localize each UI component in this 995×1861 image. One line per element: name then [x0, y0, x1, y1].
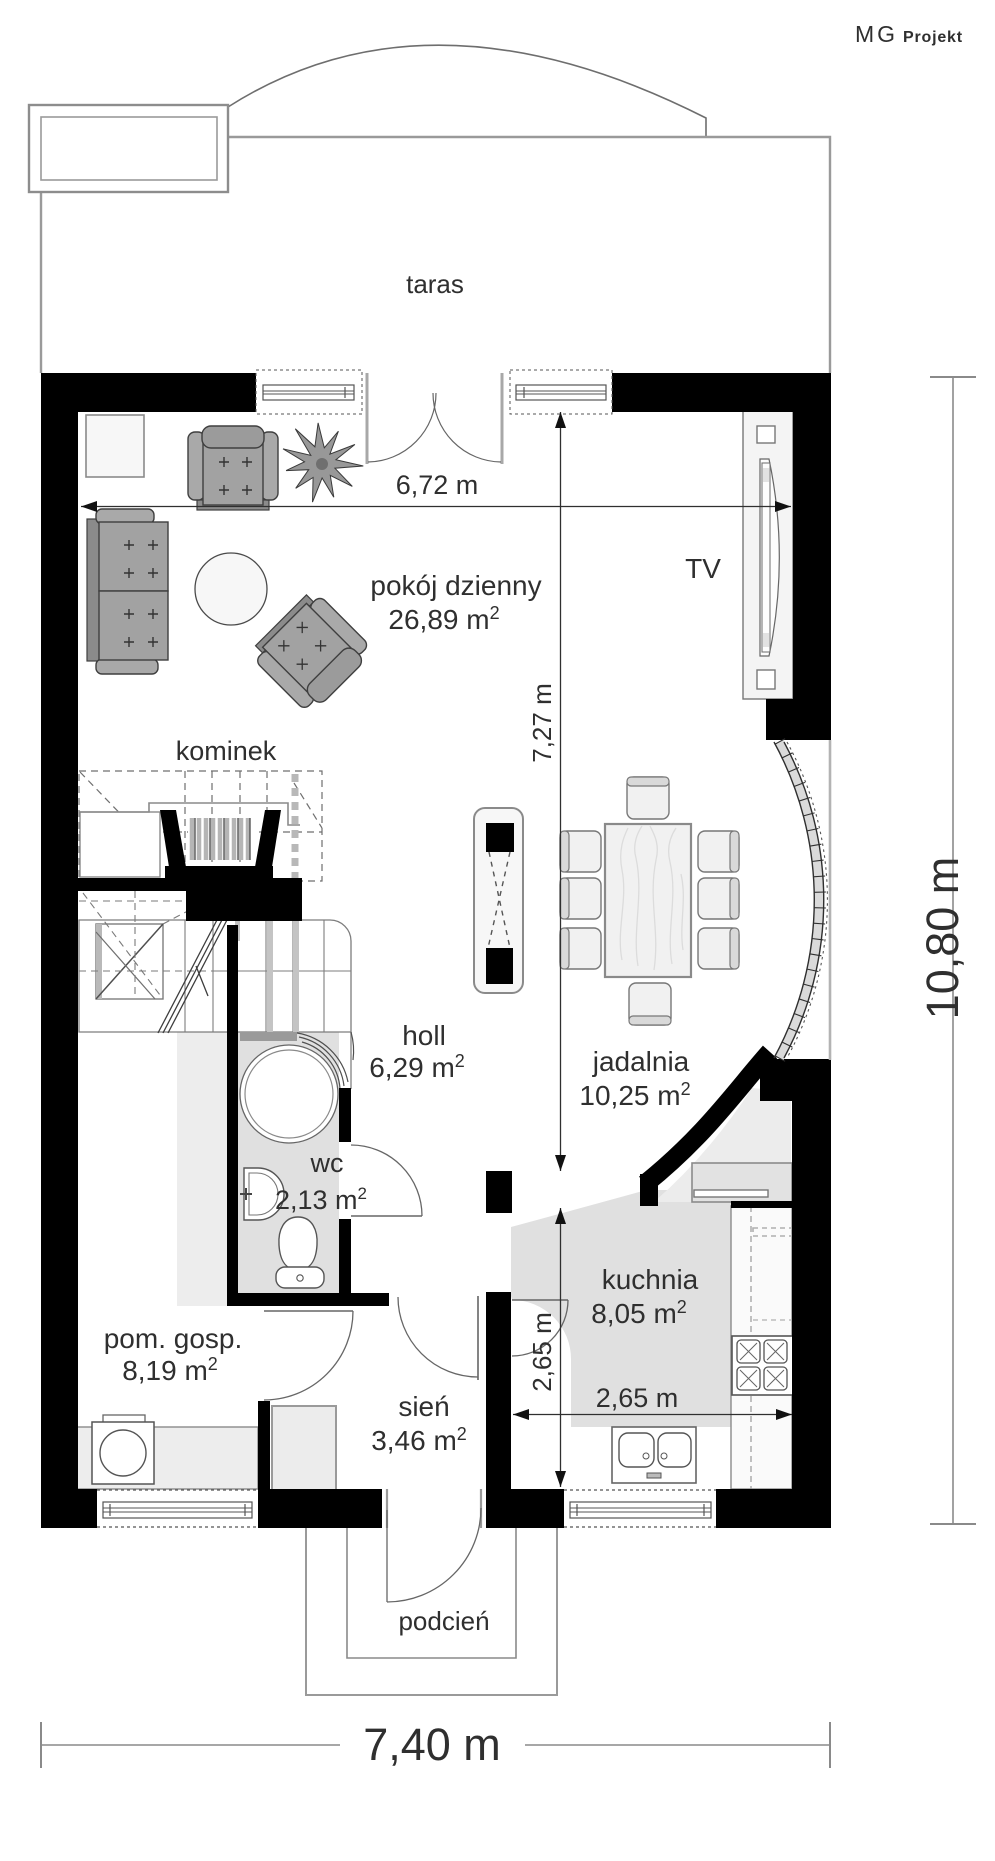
- svg-text:6,72 m: 6,72 m: [396, 470, 479, 500]
- svg-text:7,40 m: 7,40 m: [363, 1719, 501, 1770]
- svg-text:sień: sień: [398, 1391, 449, 1422]
- svg-text:10,25 m2: 10,25 m2: [579, 1079, 690, 1111]
- svg-text:8,05 m2: 8,05 m2: [591, 1297, 687, 1329]
- svg-text:podcień: podcień: [398, 1606, 489, 1636]
- svg-text:Projekt: Projekt: [903, 29, 963, 46]
- svg-text:2,65 m: 2,65 m: [596, 1383, 679, 1413]
- svg-text:kominek: kominek: [176, 736, 277, 766]
- svg-text:kuchnia: kuchnia: [602, 1264, 699, 1295]
- svg-text:2,13 m2: 2,13 m2: [275, 1184, 367, 1215]
- svg-text:MG: MG: [855, 21, 898, 47]
- svg-text:TV: TV: [685, 553, 721, 584]
- svg-text:taras: taras: [406, 269, 464, 299]
- svg-text:pom. gosp.: pom. gosp.: [104, 1323, 243, 1354]
- svg-text:2,65 m: 2,65 m: [527, 1312, 557, 1392]
- svg-text:6,29 m2: 6,29 m2: [369, 1051, 465, 1083]
- svg-text:7,27 m: 7,27 m: [527, 683, 557, 763]
- svg-text:pokój dzienny: pokój dzienny: [370, 570, 541, 601]
- svg-text:26,89 m2: 26,89 m2: [388, 603, 499, 635]
- svg-text:wc: wc: [310, 1148, 344, 1178]
- svg-text:10,80 m: 10,80 m: [917, 857, 968, 1020]
- svg-text:jadalnia: jadalnia: [592, 1046, 690, 1077]
- svg-text:8,19 m2: 8,19 m2: [122, 1354, 218, 1386]
- svg-text:holl: holl: [402, 1020, 446, 1051]
- svg-text:3,46 m2: 3,46 m2: [371, 1424, 467, 1456]
